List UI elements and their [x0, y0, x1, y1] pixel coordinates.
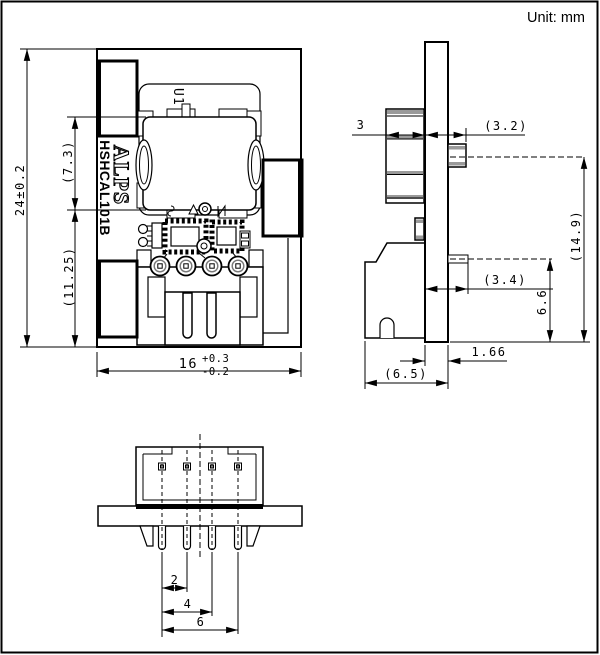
sensor-body	[143, 117, 256, 210]
connector-contact-2	[207, 293, 216, 338]
dim-sensor-section-height: (7.3)	[61, 140, 75, 184]
ic2-body	[217, 227, 236, 245]
pin1-marker-tab	[182, 104, 190, 118]
mount-tab-left	[140, 526, 153, 546]
mount-tab-right	[247, 526, 260, 546]
unit-label: Unit: mm	[527, 10, 585, 26]
drawing-canvas: Unit: mm	[0, 0, 600, 655]
testpoint-2	[139, 238, 148, 247]
th-pad-4-ring	[232, 260, 244, 272]
dim-pcb-thickness: 1.66	[472, 345, 507, 359]
dim-lower-section-height: (11.25)	[62, 246, 76, 307]
front-view: U1 ALPS HSHCAL101B 24±0.2 (7.3) (11.25) …	[13, 49, 302, 378]
connector-corner-block-left	[137, 250, 151, 267]
th-pad-2-ring	[180, 260, 192, 272]
dim-lower-pin-length: (3.4)	[483, 273, 527, 287]
dim-overall-width: 16	[179, 356, 198, 372]
connector-corner-block-right	[249, 250, 263, 267]
testpoint-1	[139, 225, 148, 234]
sensor-side	[386, 109, 424, 203]
edge-pad-right-edge	[298, 160, 302, 236]
dim-overall-height: 24±0.2	[13, 164, 27, 216]
side-view: 3 (3.2) (14.9) 6.6 (3.4) 1.66 (6.5)	[352, 42, 590, 389]
sensor-side-contact-left	[136, 140, 152, 190]
dim-upper-pin-height: (14.9)	[569, 210, 583, 262]
via-center	[197, 239, 211, 253]
dim-sensor-thickness: 3	[357, 118, 366, 132]
th-pad-1-ring	[154, 260, 166, 272]
edge-pad-right	[263, 160, 302, 236]
th-pad-3-ring	[206, 260, 218, 272]
connector-cavity	[165, 292, 240, 345]
connector-housing-side	[365, 243, 425, 338]
connector-keyhole-slot	[380, 318, 394, 338]
dim-lower-pin-height: 6.6	[535, 289, 549, 315]
edge-pad-top-left-edge	[97, 61, 101, 136]
via-top	[199, 203, 211, 215]
edge-pad-bottom-left	[98, 261, 137, 337]
edge-pad-bottom-left-edge	[97, 261, 101, 337]
dim-pin-pitch-2: 2	[171, 573, 180, 587]
connector-slot-right	[240, 277, 257, 317]
pcb-side	[425, 42, 448, 342]
connector-contact-1	[183, 293, 192, 338]
dim-upper-pin-length: (3.2)	[484, 119, 528, 133]
dim-width-tol-minus: -0.2	[202, 366, 229, 378]
small-component-left	[152, 223, 162, 248]
bottom-view-dimensions: 2 4 6	[162, 552, 238, 637]
dim-width-tol-plus: +0.3	[202, 353, 229, 365]
edge-pad-top-left	[98, 61, 137, 136]
dim-pin-pitch-6: 6	[197, 615, 206, 629]
part-number-label: HSHCAL101B	[97, 140, 113, 236]
connector-slot-left	[148, 277, 165, 317]
dim-pin-pitch-4: 4	[184, 597, 193, 611]
dim-connector-depth: (6.5)	[384, 367, 428, 381]
technical-drawing: Unit: mm	[0, 0, 600, 655]
ic1-body	[171, 227, 199, 246]
bottom-view: 2 4 6	[98, 434, 302, 637]
ref-designator-label: U1	[170, 88, 185, 106]
